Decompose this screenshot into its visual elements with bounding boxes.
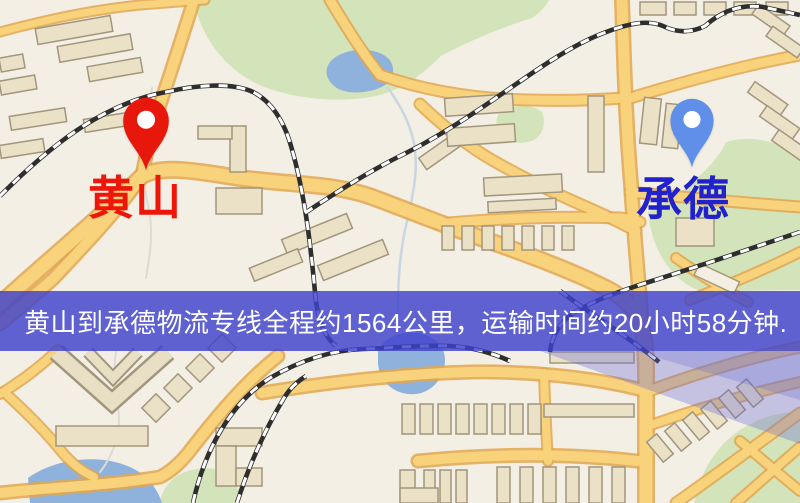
- map-graphic: [0, 0, 800, 503]
- destination-city-label: 承德: [636, 177, 730, 223]
- map-screenshot: 黄山 承德 黄山到承德物流专线全程约1564公里，运输时间约20小时58分钟.: [0, 0, 800, 503]
- origin-city-label: 黄山: [88, 176, 182, 222]
- route-banner: 黄山到承德物流专线全程约1564公里，运输时间约20小时58分钟.: [0, 291, 800, 351]
- route-banner-text: 黄山到承德物流专线全程约1564公里，运输时间约20小时58分钟.: [24, 303, 787, 340]
